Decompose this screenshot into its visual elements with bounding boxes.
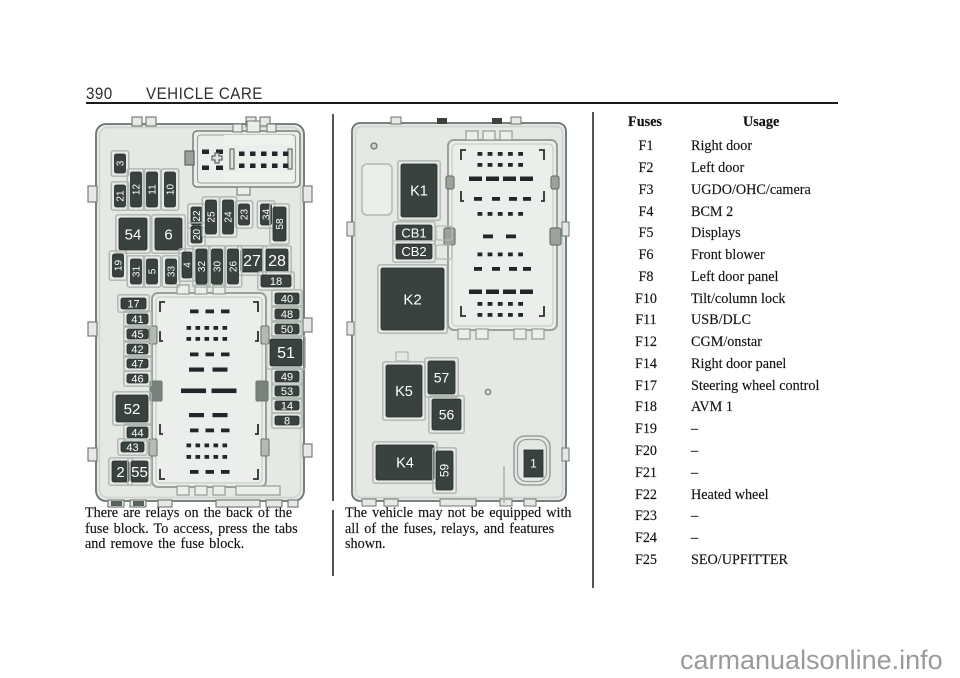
svg-text:5: 5 (148, 268, 159, 274)
svg-text:2: 2 (116, 464, 124, 481)
svg-text:42: 42 (131, 344, 143, 356)
svg-text:18: 18 (270, 276, 282, 288)
svg-text:51: 51 (277, 345, 295, 362)
svg-text:8: 8 (284, 415, 290, 427)
svg-text:48: 48 (281, 309, 293, 321)
svg-text:4: 4 (183, 262, 194, 268)
svg-text:50: 50 (281, 324, 293, 336)
svg-text:32: 32 (197, 261, 208, 273)
svg-text:14: 14 (281, 400, 293, 412)
svg-text:21: 21 (116, 190, 127, 202)
svg-text:47: 47 (131, 358, 143, 370)
svg-text:41: 41 (131, 314, 143, 326)
svg-text:56: 56 (439, 406, 455, 422)
svg-text:24: 24 (224, 211, 235, 223)
svg-text:57: 57 (434, 369, 450, 385)
svg-text:3: 3 (116, 160, 127, 166)
svg-text:30: 30 (213, 261, 224, 273)
svg-text:11: 11 (148, 184, 159, 195)
svg-text:1: 1 (530, 457, 537, 471)
svg-text:23: 23 (240, 209, 251, 221)
svg-text:52: 52 (124, 401, 141, 418)
svg-text:53: 53 (281, 386, 293, 398)
svg-text:10: 10 (166, 184, 177, 196)
svg-text:K2: K2 (403, 291, 421, 308)
svg-text:59: 59 (438, 464, 452, 478)
svg-text:12: 12 (132, 184, 143, 196)
svg-text:31: 31 (132, 266, 143, 278)
svg-text:44: 44 (131, 427, 143, 439)
svg-text:45: 45 (131, 329, 143, 341)
svg-text:58: 58 (275, 218, 286, 230)
svg-text:K5: K5 (395, 384, 413, 400)
svg-text:34: 34 (262, 209, 273, 221)
svg-text:K1: K1 (410, 184, 428, 200)
svg-text:6: 6 (164, 226, 172, 243)
svg-text:CB1: CB1 (401, 226, 426, 241)
svg-text:25: 25 (207, 211, 218, 223)
svg-text:49: 49 (281, 371, 293, 383)
svg-text:55: 55 (131, 464, 148, 481)
svg-text:CB2: CB2 (401, 244, 426, 259)
svg-text:26: 26 (229, 261, 240, 273)
svg-text:K4: K4 (396, 456, 414, 472)
svg-text:27: 27 (243, 253, 261, 270)
svg-text:22: 22 (192, 210, 203, 222)
svg-text:19: 19 (114, 260, 125, 272)
svg-text:46: 46 (131, 373, 143, 385)
svg-text:40: 40 (281, 293, 293, 305)
svg-text:17: 17 (127, 298, 139, 310)
svg-text:43: 43 (126, 442, 138, 454)
svg-text:54: 54 (125, 226, 142, 243)
svg-text:28: 28 (268, 253, 286, 270)
svg-text:20: 20 (192, 229, 203, 241)
svg-text:33: 33 (167, 266, 178, 278)
